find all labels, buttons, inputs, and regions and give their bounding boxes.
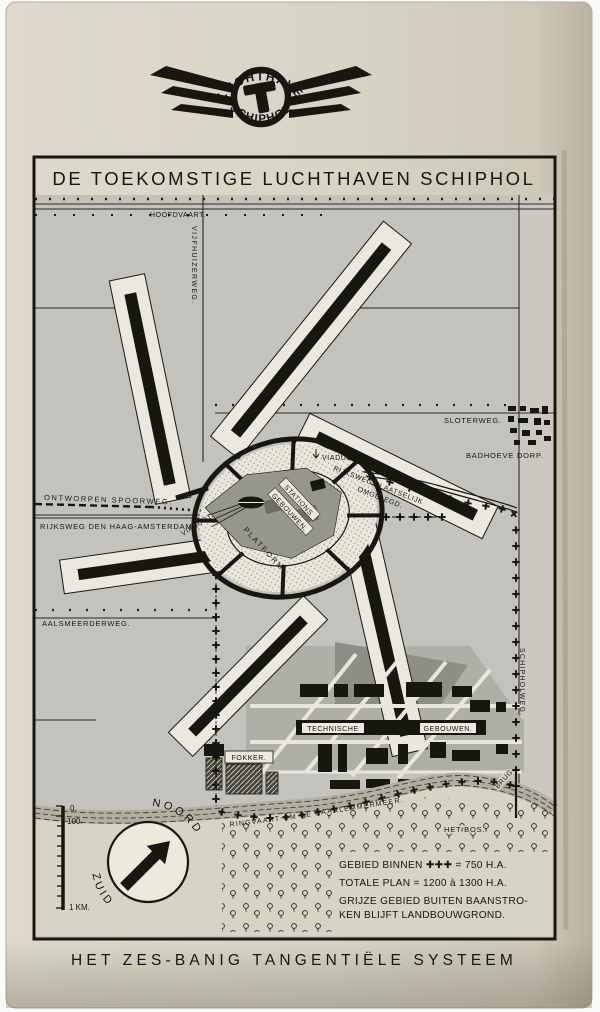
brochure-map: LUCHTHAVEN SCHIPHOL DE TOEKOMSTIGE LUCHT… [0, 0, 600, 1012]
legend-line-2: TOTALE PLAN = 1200 à 1300 H.A. [339, 878, 507, 889]
fokker-label: FOKKER. [232, 755, 267, 762]
hoofdvaart-label: HOOFDVAART. [150, 212, 206, 219]
legend-line-4: KEN BLIJFT LANDBOUWGROND. [339, 910, 505, 921]
sloterweg-label: SLOTERWEG. [444, 416, 502, 425]
legend-line-1: GEBIED BINNEN ✚✚✚ = 750 H.A. [339, 860, 507, 871]
gebouwen-label: GEBOUWEN. [424, 726, 473, 733]
scale-zero-label: 0. [70, 804, 77, 813]
scale-100-label: 100. [67, 817, 83, 826]
scale-km-label: 1 KM. [69, 903, 90, 912]
het-bos-label: HET BOS. [444, 825, 485, 834]
badhoeve-dorp-label: BADHOEVE DORP. [466, 451, 544, 460]
legend-line-3: GRIJZE GEBIED BUITEN BAANSTRO- [339, 896, 528, 907]
schipholweg-label: SCHIPHOLWEG. [518, 648, 525, 716]
paper-fold-crease [564, 150, 566, 930]
viaduct-north-label: VIADUCT. [322, 455, 359, 462]
technische-label: TECHNISCHE [307, 726, 359, 733]
map-area: TECHNISCHE GEBOUWEN. FOKKER. RINGVAART O… [34, 157, 555, 939]
forest [222, 852, 332, 932]
scanned-brochure-photo: LUCHTHAVEN SCHIPHOL DE TOEKOMSTIGE LUCHT… [0, 0, 600, 1012]
page-title: DE TOEKOMSTIGE LUCHTHAVEN SCHIPHOL [52, 168, 535, 189]
bottom-caption: HET ZES-BANIG TANGENTIËLE SYSTEEM [71, 952, 517, 969]
vijfhuizerweg-label: VIJFHUIZERWEG. [190, 226, 197, 305]
aalsmeerderweg-label: AALSMEERDERWEG. [42, 619, 131, 628]
rijksweg-den-haag-label: RIJKSWEG DEN HAAG-AMSTERDAM. [40, 522, 195, 531]
